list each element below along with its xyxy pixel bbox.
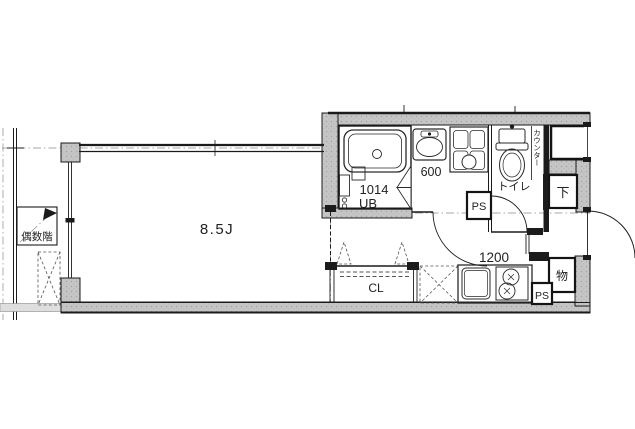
stove [496, 267, 528, 300]
closet: CL [330, 242, 419, 302]
toilet-door-swing [491, 196, 527, 232]
sliding-window [62, 162, 78, 278]
counter-label: カウンター [533, 129, 542, 167]
washroom: 600 PS [412, 125, 492, 266]
main-room-size-label: 8.5J [200, 221, 234, 238]
toilet-fixture [496, 124, 528, 181]
east-wall-lower [575, 256, 590, 306]
ps-kitchen-label: PS [535, 290, 549, 302]
front-door-swing [588, 211, 635, 258]
main-room-east-wall [322, 113, 338, 212]
kitchen: 1200 [420, 250, 532, 303]
even-floor-note-box: 偶数階 [17, 207, 57, 245]
meter-box-alcove [551, 122, 591, 162]
unit-bath-model-label: 1014 [360, 182, 389, 197]
corridor-hatch-box [38, 252, 60, 305]
floor-plan-drawing: 偶数階 [0, 0, 635, 429]
unit-bath-label: UB [359, 196, 377, 211]
washbasin [413, 129, 446, 160]
floor-plan-canvas: 偶数階 [0, 0, 635, 429]
shoe-box-label: 下 [556, 185, 569, 200]
common-corridor: 偶数階 [0, 128, 61, 320]
corridor-slab-edge [0, 304, 61, 312]
ps-washroom-label: PS [472, 201, 487, 213]
closet-folding-door-left [337, 242, 351, 264]
bathtub [344, 130, 406, 172]
main-room: 8.5J [62, 140, 337, 278]
storage-cluster: 物 PS [529, 252, 575, 304]
window-pillar-top [61, 143, 80, 162]
floor-note-label: 偶数階 [21, 230, 53, 243]
bath-folding-door [397, 166, 411, 209]
vanity-width-label: 600 [421, 165, 442, 179]
storage-label: 物 [556, 269, 568, 283]
closet-label: CL [368, 281, 384, 295]
kitchen-sink [462, 268, 490, 299]
toilet-room: カウンター トイレ [491, 124, 549, 235]
front-door [583, 207, 635, 260]
washing-machine-pan [450, 127, 488, 172]
north-wall [328, 113, 590, 125]
closet-folding-door-right [395, 242, 409, 264]
toilet-label: トイレ [498, 181, 531, 193]
refrigerator-space [420, 266, 458, 303]
kitchen-width-label: 1200 [479, 250, 509, 265]
unit-bath-room: 1014 UB [339, 126, 411, 211]
